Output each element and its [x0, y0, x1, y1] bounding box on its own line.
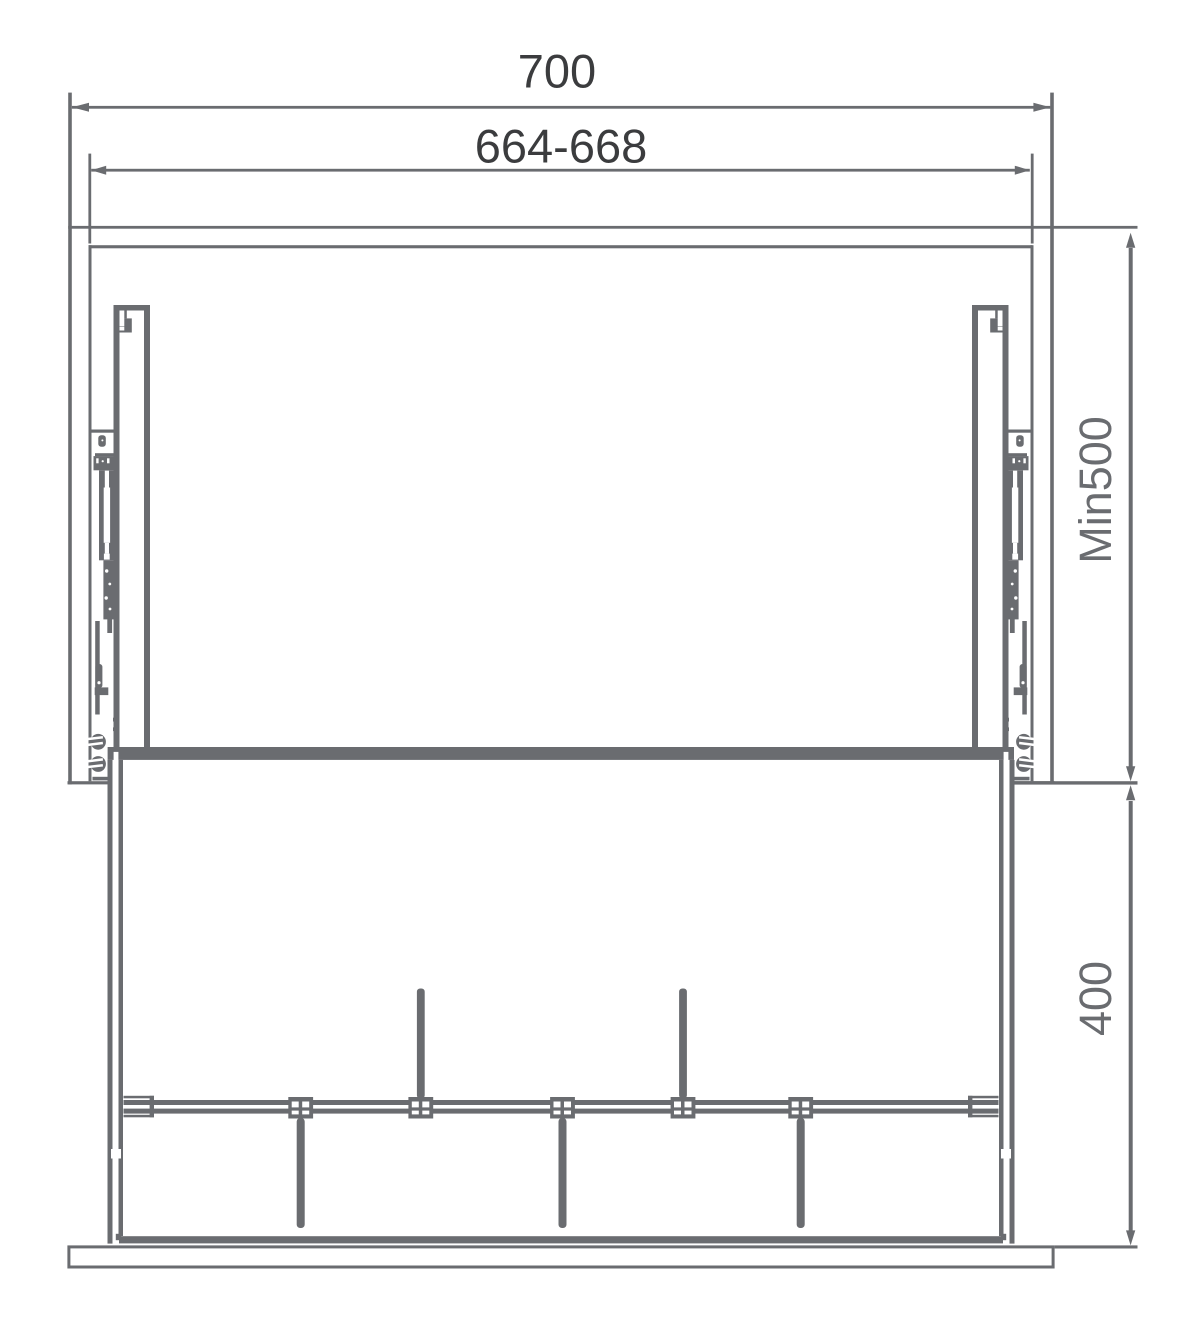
svg-text:664-668: 664-668 [475, 120, 648, 173]
svg-text:700: 700 [518, 45, 596, 98]
svg-text:Min500: Min500 [1070, 416, 1121, 564]
svg-text:400: 400 [1070, 961, 1121, 1036]
